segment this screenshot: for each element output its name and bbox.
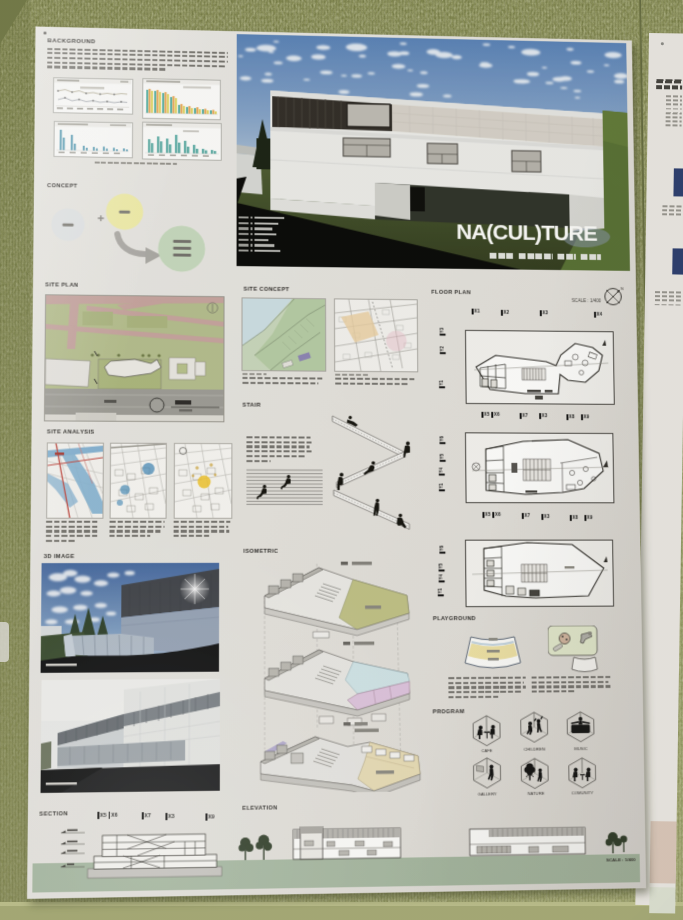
svg-text:N: N <box>621 286 624 291</box>
